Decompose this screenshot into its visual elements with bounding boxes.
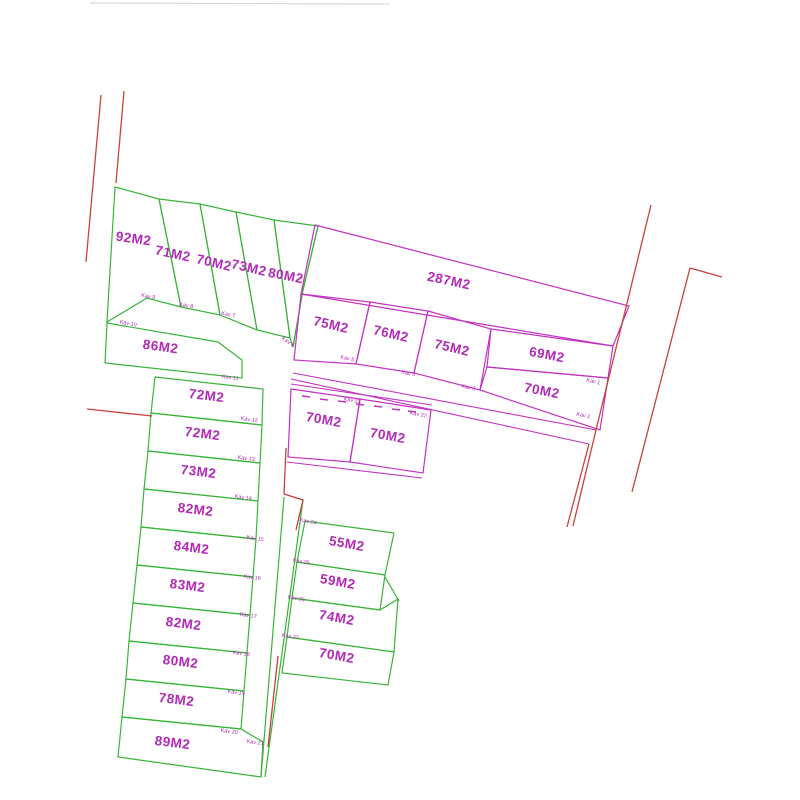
red-boundary-line <box>632 268 690 492</box>
plot-84m2-label: 84M2 <box>173 538 210 557</box>
plot-82m2-b-label: 82M2 <box>165 614 202 633</box>
kav-label: Kav 15 <box>246 535 264 543</box>
kav-label: Kav 22 <box>409 411 427 420</box>
faint-top-line <box>90 3 390 4</box>
plot-80m2-a-label: 80M2 <box>267 265 305 287</box>
kav-label: Kav 13 <box>237 455 255 463</box>
red-boundary-line <box>573 205 651 526</box>
kav-label: Kav 19 <box>227 689 245 697</box>
plot-59m2-label: 59M2 <box>319 571 357 592</box>
plot-74m2-label: 74M2 <box>318 607 356 628</box>
kav-label: Kav 1 <box>586 378 601 387</box>
plot-86m2-label: 86M2 <box>142 337 180 357</box>
plot-71m2-label: 71M2 <box>154 243 192 265</box>
plot-70m2-c-label: 70M2 <box>305 409 343 430</box>
plot-73m2-b-label: 73M2 <box>180 462 217 481</box>
plot-83m2-label: 83M2 <box>169 576 206 595</box>
kav-label: Kav 21 <box>246 739 264 747</box>
kav-label: Kav 17 <box>239 612 257 620</box>
kav-label: Kav 24 <box>299 518 317 527</box>
kav-label: Kav 7 <box>221 311 236 319</box>
plot-69m2-label: 69M2 <box>528 344 566 366</box>
red-boundary-line <box>690 268 722 277</box>
plot-82m2-a-label: 82M2 <box>177 500 214 519</box>
red-boundary-line <box>87 409 152 416</box>
kav-label: Kav 23 <box>343 397 361 406</box>
kav-label: Kav 26 <box>287 595 305 604</box>
plot-72m2-b-label: 72M2 <box>184 424 221 443</box>
plot-78m2-label: 78M2 <box>158 690 195 709</box>
plot-70m2-d-label: 70M2 <box>369 425 407 446</box>
kav-label: Kav 16 <box>243 574 261 582</box>
plot-75m2-b-label: 75M2 <box>433 336 471 359</box>
plot-72m2-a-label: 72M2 <box>188 386 225 405</box>
kav-label: Kav 8 <box>179 302 194 310</box>
kav-label: Kav 11 <box>221 374 238 382</box>
red-boundary-line <box>567 444 589 527</box>
plot-70m2-b-label: 70M2 <box>318 645 356 666</box>
kav-label: Kav 4 <box>401 370 416 379</box>
plot-70m2-e-label: 70M2 <box>523 380 561 402</box>
kav-label: Kav 5 <box>340 355 355 364</box>
plot-75m2-a-label: 75M2 <box>312 313 350 336</box>
plot-287m2-label: 287M2 <box>426 269 472 293</box>
kav-label: Kav 14 <box>234 494 252 502</box>
plot-70m2-a-label: 70M2 <box>195 251 233 274</box>
red-boundary-line <box>116 91 124 183</box>
plot-89m2-label: 89M2 <box>154 733 191 752</box>
kav-label: Kav 6 <box>280 336 295 349</box>
site-plan-svg: 92M271M270M273M280M286M272M272M273M282M2… <box>0 0 800 800</box>
kav-label: Kav 2 <box>576 412 591 421</box>
kav-label: Kav 20 <box>220 728 238 736</box>
road-hatch-dash <box>320 399 328 400</box>
plot-55m2-label: 55M2 <box>328 533 366 554</box>
road-strip-line <box>291 384 432 405</box>
road-hatch-dash <box>302 396 310 397</box>
kav-label: Kav 3 <box>461 384 476 393</box>
plot-80m2-b-label: 80M2 <box>162 652 199 671</box>
road-hatch-dash <box>374 406 382 407</box>
plot-92m2-label: 92M2 <box>115 229 153 249</box>
kav-label: Kav 18 <box>232 650 250 658</box>
red-boundary-line <box>86 95 101 262</box>
site-plan-canvas: 92M271M270M273M280M286M272M272M273M282M2… <box>0 0 800 800</box>
green-boundary-line <box>385 577 399 601</box>
kav-label: Kav 25 <box>292 558 310 567</box>
plot-73m2-a-label: 73M2 <box>230 256 268 279</box>
plot-76m2-label: 76M2 <box>372 322 410 345</box>
road-hatch-dash <box>392 409 400 410</box>
